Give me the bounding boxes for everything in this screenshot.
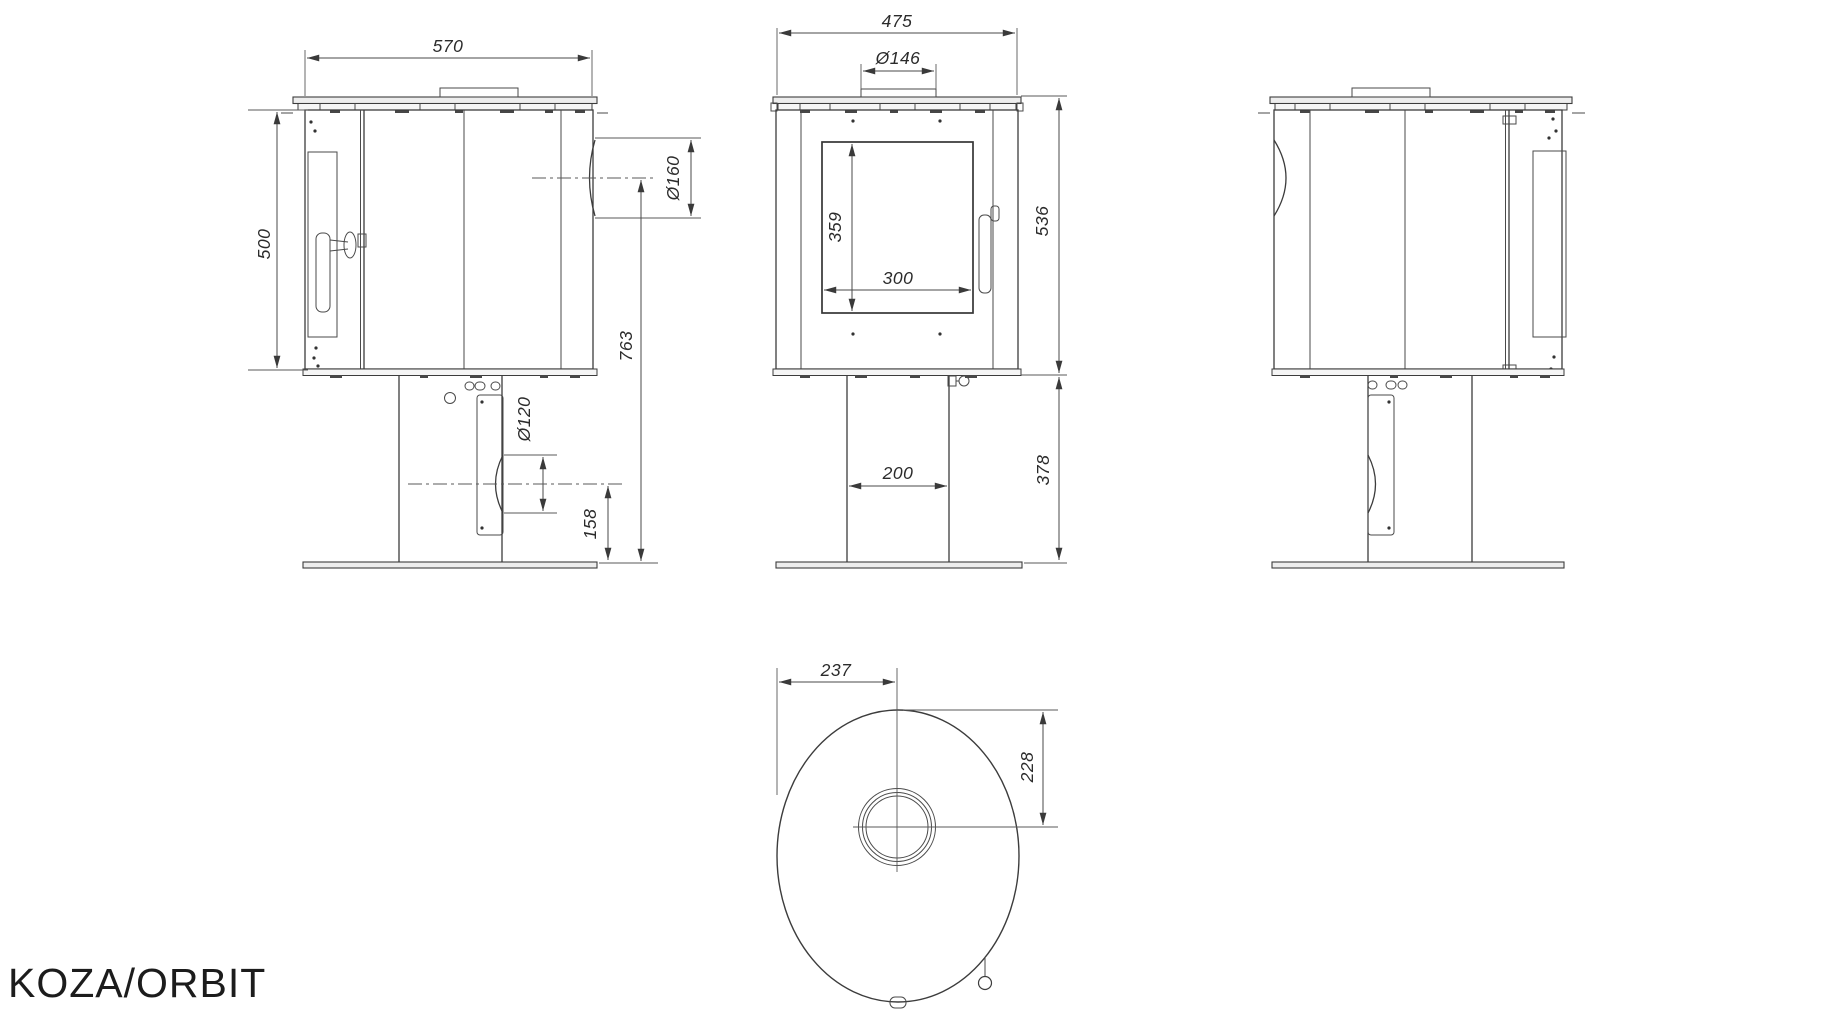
dim-label-d120: Ø120 <box>514 397 534 443</box>
front-view: 475 Ø146 359 300 536 378 20 <box>771 11 1067 568</box>
dim-label-228: 228 <box>1017 752 1037 784</box>
dim-glass-width: 300 <box>824 268 971 290</box>
technical-drawing-page: 570 500 Ø160 763 Ø120 158 <box>0 0 1832 1029</box>
dim-base-height: 378 <box>1024 377 1067 563</box>
dim-label-237: 237 <box>820 660 852 680</box>
side-view-left: 570 500 Ø160 763 Ø120 158 <box>248 36 701 568</box>
dim-side-height: 500 <box>248 110 308 370</box>
dim-label-378: 378 <box>1033 455 1053 486</box>
body-outline-oval <box>777 710 1019 1002</box>
dim-body-height: 536 <box>1021 96 1067 375</box>
dim-label-d160: Ø160 <box>663 156 683 202</box>
dim-flue-diameter: Ø160 <box>663 140 691 216</box>
dim-glass-height: 359 <box>825 144 852 311</box>
collar-stub <box>861 89 936 97</box>
dim-flue-center-offset: 228 <box>903 710 1058 825</box>
dim-label-200: 200 <box>882 463 914 483</box>
dim-outlet-diameter: Ø120 <box>504 397 557 513</box>
dim-label-d146: Ø146 <box>875 48 921 68</box>
side-view-right <box>1258 88 1585 568</box>
dim-label-359: 359 <box>825 212 845 243</box>
top-view: 237 228 <box>777 660 1058 1008</box>
side-door-panel <box>1533 151 1566 337</box>
stove-dimension-drawing: 570 500 Ø160 763 Ø120 158 <box>0 0 1832 1029</box>
dim-collar-diameter: Ø146 <box>861 48 936 89</box>
dim-edge-to-center: 237 <box>777 660 895 795</box>
collar-stub <box>440 88 518 97</box>
side-door-panel <box>308 152 337 337</box>
rear-outlet-plate <box>1368 395 1394 535</box>
pedestal-fasteners <box>1368 381 1407 389</box>
flue-pipe-arc <box>1274 140 1286 216</box>
dim-label-300: 300 <box>883 268 914 288</box>
door-handle-front <box>979 206 999 293</box>
dim-side-width: 570 <box>305 36 592 96</box>
product-title: KOZA/ORBIT <box>8 960 266 1007</box>
pedestal-fasteners <box>445 382 501 404</box>
dim-label-763: 763 <box>616 331 636 362</box>
dim-label-475: 475 <box>882 11 913 31</box>
collar-stub <box>1352 88 1430 97</box>
dim-outlet-center-height: 158 <box>580 486 608 560</box>
dim-pedestal-width: 200 <box>849 463 947 486</box>
dim-label-536: 536 <box>1032 206 1052 237</box>
dim-label-570: 570 <box>433 36 464 56</box>
door-handle-side <box>316 232 366 312</box>
dim-label-158: 158 <box>580 509 600 540</box>
rear-outlet-plate <box>477 395 503 535</box>
dim-label-500: 500 <box>254 229 274 260</box>
